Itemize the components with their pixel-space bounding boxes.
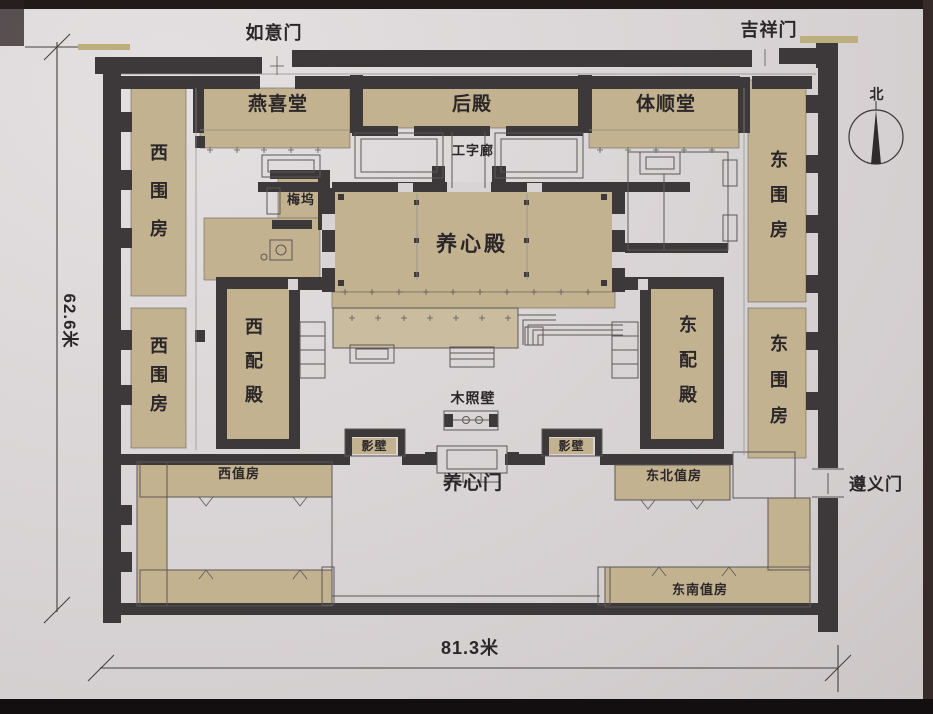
west-wing-upper-label: 西围房 — [149, 143, 167, 257]
tishun-hall-label: 体顺堂 — [629, 95, 703, 114]
west-duty-label: 西值房 — [209, 467, 269, 480]
zunyi-gate-label: 遵义门 — [842, 476, 910, 493]
screen-east-label: 影壁 — [550, 440, 593, 452]
rear-hall-label: 后殿 — [441, 95, 503, 114]
compass-icon — [849, 101, 903, 164]
northeast-duty-label: 东北值房 — [637, 469, 711, 482]
southeast-duty-label: 东南值房 — [663, 583, 737, 596]
vertical-dimension-label: 62.6米 — [60, 278, 78, 364]
east-annex-label: 东配殿 — [678, 315, 696, 420]
north-label: 北 — [867, 87, 887, 101]
terrace-fill — [333, 308, 518, 348]
west-annex-label: 西配殿 — [244, 317, 262, 419]
yangxin-gate-label: 养心门 — [433, 474, 513, 493]
ruyi-gate-label: 如意门 — [235, 24, 313, 42]
east-wing-upper-label: 东围房 — [769, 150, 787, 255]
wood-screen-label: 木照壁 — [441, 391, 505, 405]
east-wing-lower-label: 东围房 — [769, 334, 787, 442]
yanxi-hall-label: 燕喜堂 — [242, 95, 314, 114]
jixiang-gate-label: 吉祥门 — [730, 21, 808, 39]
gongzi-corridor-label: 工字廊 — [447, 144, 499, 157]
west-wing-lower-label: 西围房 — [149, 336, 167, 423]
horizontal-dimension-label: 81.3米 — [418, 639, 522, 657]
screen-west-label: 影壁 — [353, 440, 396, 452]
floor-plan-page: 如意门 吉祥门 北 燕喜堂 后殿 体顺堂 工字廊 梅坞 养心殿 西围房 西围房 … — [0, 0, 933, 714]
meiwu-label: 梅坞 — [283, 193, 319, 206]
yangxin-hall-label: 养心殿 — [425, 234, 519, 255]
